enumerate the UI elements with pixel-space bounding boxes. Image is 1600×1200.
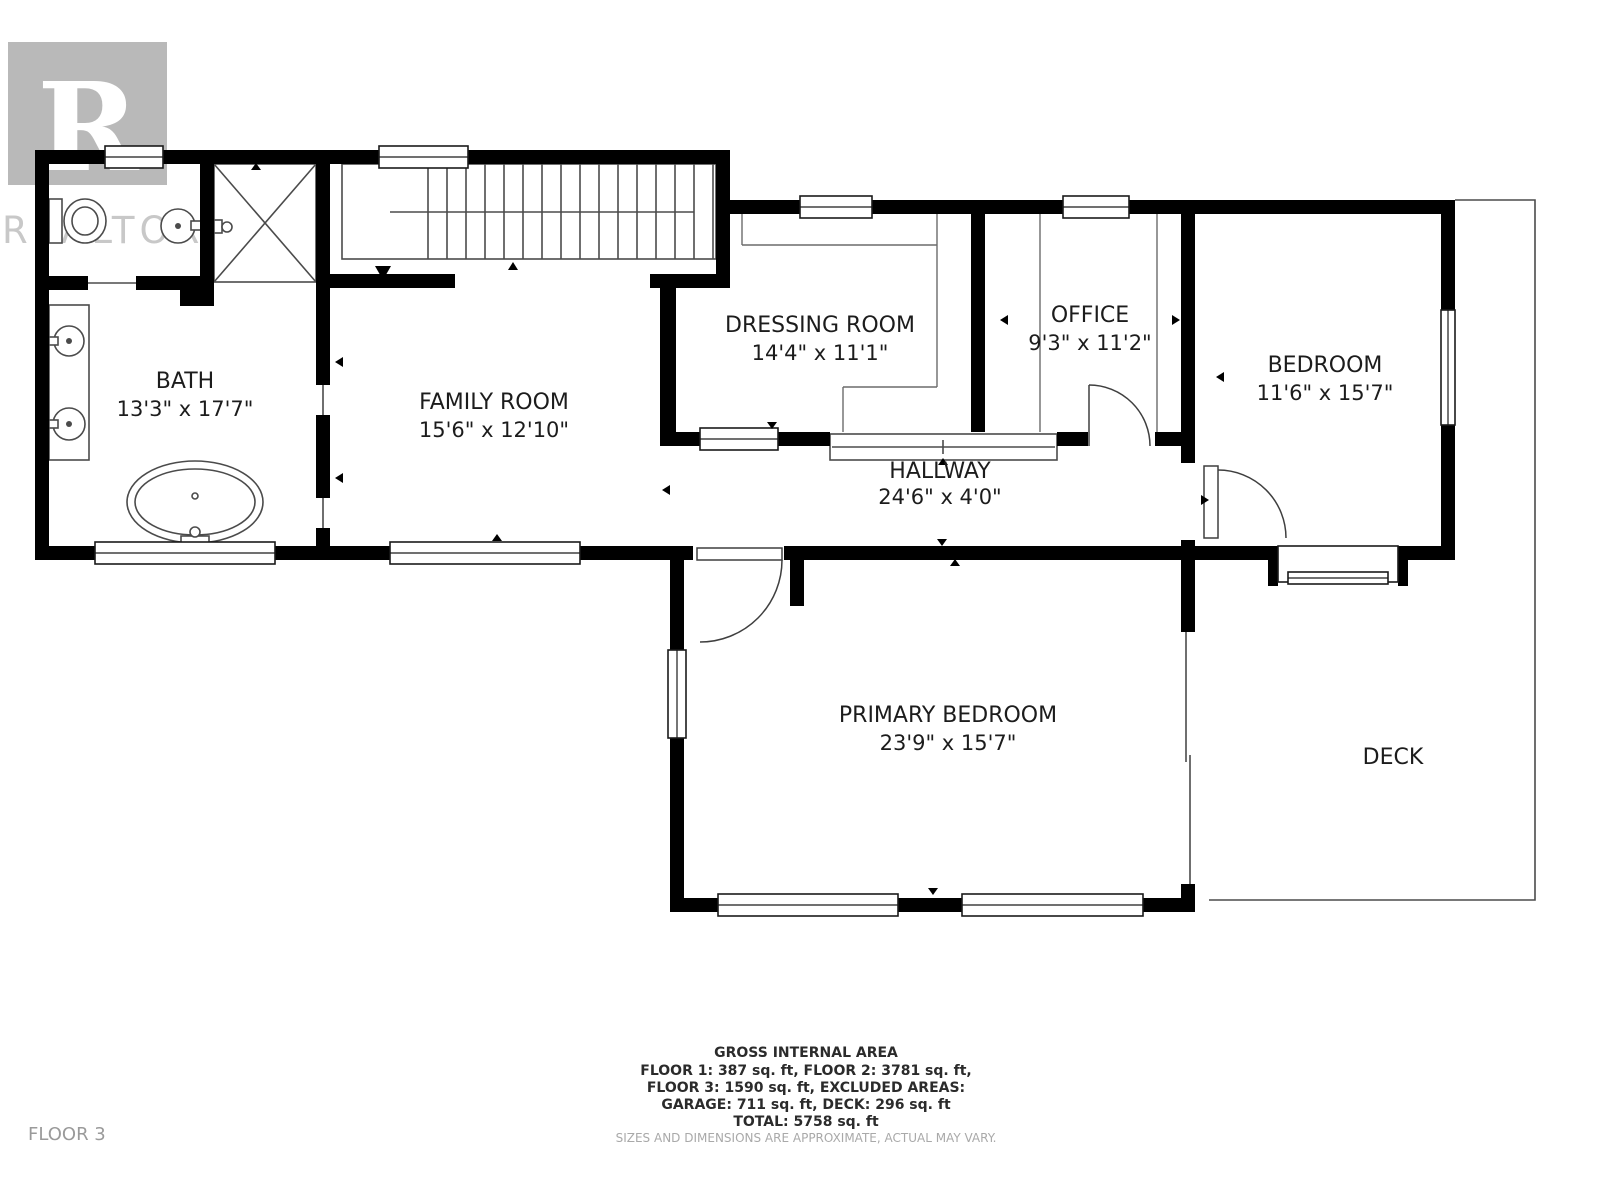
- area-summary-line: FLOOR 3: 1590 sq. ft, EXCLUDED AREAS:: [647, 1080, 965, 1096]
- wall-segment: [971, 214, 985, 432]
- dimension-tick: [928, 888, 938, 895]
- wall-segment: [1181, 884, 1195, 912]
- room-dims-hallway: 24'6" x 4'0": [878, 485, 1001, 509]
- bathtub-fixture: [127, 461, 263, 543]
- bay-window: [1278, 546, 1398, 584]
- floor-plan-canvas: R REALTOR ®: [0, 0, 1600, 1200]
- window: [700, 428, 778, 450]
- wall-segment: [782, 546, 1195, 560]
- dimension-tick: [937, 539, 947, 546]
- dimension-tick: [1216, 372, 1224, 382]
- window: [962, 894, 1143, 916]
- room-dims-bedroom: 11'6" x 15'7": [1257, 381, 1394, 405]
- room-dims-family-room: 15'6" x 12'10": [419, 418, 569, 442]
- bedroom-door-opening: [1179, 463, 1197, 540]
- staircase: [342, 164, 716, 280]
- shower-fixture: [214, 164, 316, 282]
- toilet-fixture: [49, 199, 106, 243]
- vanity-fixture: [49, 305, 89, 460]
- primary-bedroom-door: [697, 548, 782, 642]
- dimension-tick: [335, 473, 343, 483]
- wall-segment: [660, 288, 676, 446]
- window: [390, 542, 580, 564]
- area-summary: GROSS INTERNAL AREA FLOOR 1: 387 sq. ft,…: [28, 1045, 996, 1145]
- window: [668, 650, 686, 738]
- wall-segment: [200, 150, 214, 276]
- window: [95, 542, 275, 564]
- room-dims-office: 9'3" x 11'2": [1028, 331, 1151, 355]
- room-label-hallway: HALLWAY: [889, 459, 991, 484]
- window: [718, 894, 898, 916]
- window: [379, 146, 468, 168]
- wall-segment: [790, 546, 804, 606]
- room-labels: BATH 13'3" x 17'7" FAMILY ROOM 15'6" x 1…: [117, 303, 1424, 770]
- dimension-tick: [508, 262, 518, 270]
- room-label-office: OFFICE: [1051, 303, 1129, 328]
- window: [1063, 196, 1129, 218]
- room-label-primary-bedroom: PRIMARY BEDROOM: [839, 703, 1057, 728]
- wall-opening: [314, 498, 332, 528]
- wall-segment: [1181, 214, 1195, 463]
- window: [800, 196, 872, 218]
- disclaimer-text: SIZES AND DIMENSIONS ARE APPROXIMATE, AC…: [616, 1131, 997, 1145]
- wall-opening: [314, 385, 332, 415]
- office-door-opening: [1088, 430, 1155, 448]
- floor-plan-page: R REALTOR ®: [0, 0, 1600, 1200]
- room-label-bedroom: BEDROOM: [1268, 353, 1383, 378]
- dimension-tick: [492, 534, 502, 541]
- dimension-tick: [662, 485, 670, 495]
- window: [1441, 310, 1455, 425]
- wall-segment: [1195, 200, 1455, 214]
- wall-segment: [1181, 546, 1195, 632]
- wall-segment: [1268, 546, 1278, 586]
- bedroom-door: [1204, 466, 1286, 538]
- room-label-bath: BATH: [156, 369, 214, 394]
- wall-segment: [1398, 546, 1408, 586]
- wall-opening: [88, 274, 136, 292]
- dimension-tick: [1172, 315, 1180, 325]
- room-dims-primary-bedroom: 23'9" x 15'7": [880, 731, 1017, 755]
- area-summary-line: FLOOR 1: 387 sq. ft, FLOOR 2: 3781 sq. f…: [640, 1063, 971, 1079]
- wall-segment: [716, 150, 730, 288]
- area-summary-title: GROSS INTERNAL AREA: [714, 1045, 898, 1061]
- room-label-dressing-room: DRESSING ROOM: [725, 313, 915, 338]
- room-label-deck: DECK: [1363, 745, 1424, 770]
- room-label-family-room: FAMILY ROOM: [419, 390, 569, 415]
- wall-segment: [35, 150, 49, 560]
- realtor-logo-r: R: [37, 55, 140, 199]
- area-summary-line: TOTAL: 5758 sq. ft: [733, 1114, 879, 1130]
- window: [105, 146, 163, 168]
- deck-sliding-door: [1186, 632, 1190, 884]
- wall-segment: [330, 274, 455, 288]
- area-summary-line: GARAGE: 711 sq. ft, DECK: 296 sq. ft: [661, 1097, 951, 1113]
- dimension-tick: [950, 559, 960, 566]
- room-dims-bath: 13'3" x 17'7": [117, 397, 254, 421]
- bath-fixtures: [49, 164, 316, 543]
- floor-number-label: FLOOR 3: [28, 1124, 106, 1145]
- dimension-tick: [1000, 315, 1008, 325]
- wall-segment: [650, 274, 730, 288]
- dimension-tick: [335, 357, 343, 367]
- room-dims-dressing-room: 14'4" x 11'1": [752, 341, 889, 365]
